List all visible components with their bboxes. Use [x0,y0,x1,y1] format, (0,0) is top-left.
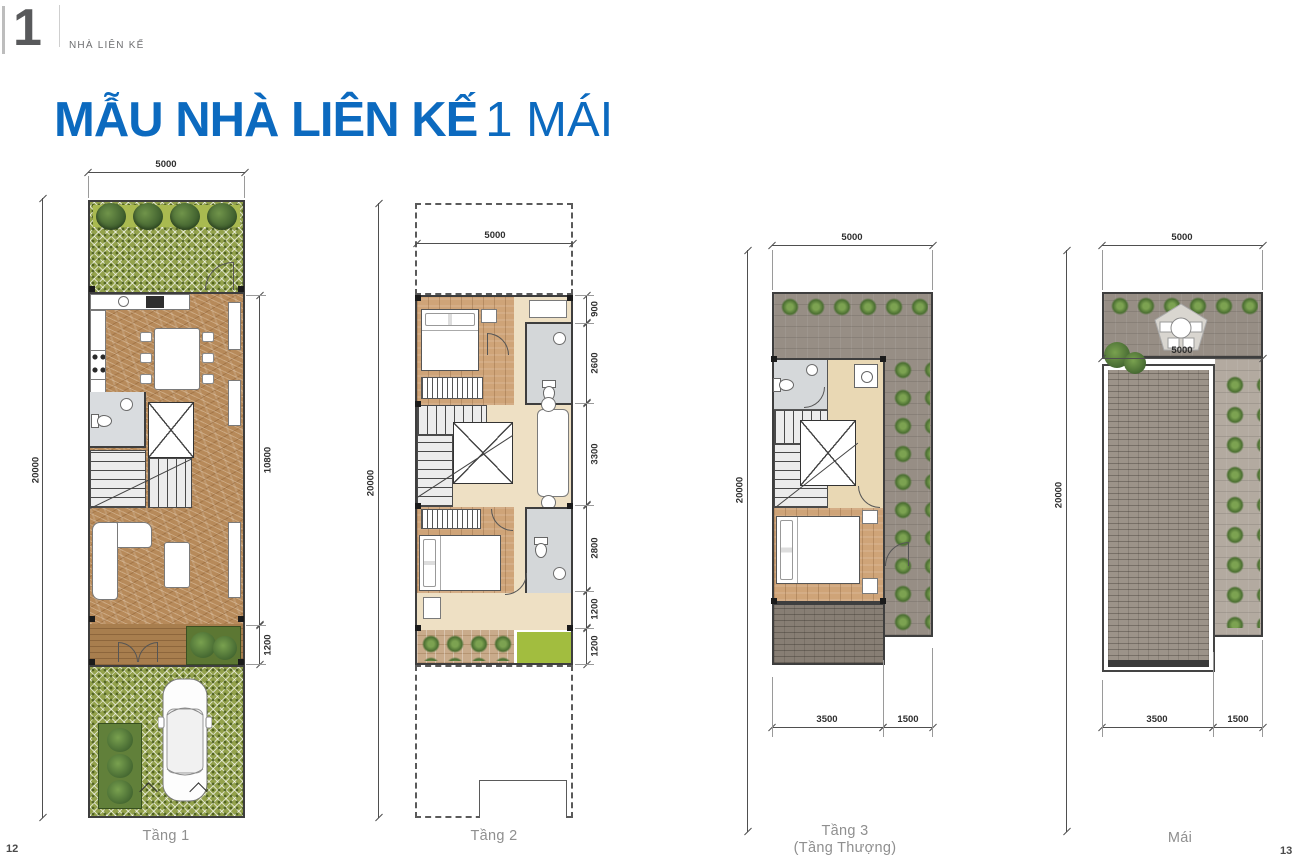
entry-door-arc-left [118,642,138,662]
toilet [91,415,111,429]
balcony-grass [514,630,571,663]
balcony-planter [417,630,514,663]
bedside-table [862,510,878,524]
entry-porch [90,624,243,667]
dim-extension [575,664,594,665]
column [567,503,573,509]
column [567,295,573,301]
column [89,659,95,665]
plan-label-tang-1: Tầng 1 [143,828,190,844]
dim-value: 3500 [816,714,837,725]
column [415,625,421,631]
lower-roof-slope [772,603,885,665]
dim-extension [246,295,266,296]
dim-extension [575,628,594,629]
bed-2 [419,535,501,591]
car-top-view [158,677,212,805]
dim-line [586,591,587,628]
dim-extension [575,295,594,296]
dim-extension [1102,250,1103,290]
bush [107,780,133,804]
column [771,356,777,362]
dim-extension [246,664,266,665]
bathroom-2-door-arc [505,573,527,595]
washbasin [553,567,566,580]
stairs-flight [90,450,146,508]
toilet [773,379,793,393]
bathroom [774,360,828,410]
dining-chair [202,353,214,363]
wall-cabinet [228,380,241,426]
bathroom-1 [525,322,571,405]
dim-extension [1102,680,1103,737]
kitchen-sink [118,296,129,307]
wardrobe [421,377,483,399]
window-planter [529,300,567,318]
wall-cabinet [228,302,241,350]
column [880,598,886,604]
dim-line [1102,358,1263,359]
stair-void [800,420,856,486]
stairs-flight [417,435,453,507]
column [567,625,573,631]
sofa-vertical [92,522,118,600]
dim-value: 20000 [31,457,42,483]
column [238,616,244,622]
dining-chair [202,332,214,342]
brochure-page: 1 NHÀ LIÊN KẾ MẪU NHÀ LIÊN KẾ1 MÁI [0,0,1300,860]
terrace-plant-column [888,356,930,634]
tree [133,203,163,230]
dim-value: 20000 [735,477,746,503]
built-area [415,295,573,665]
dim-line [259,295,260,625]
floor-plan-tang-3 [772,292,933,665]
tv-cabinet [228,522,241,598]
washbasin [553,332,566,345]
wardrobe [421,509,481,529]
column [880,356,886,362]
entry-door-leaf [118,642,119,662]
tree [170,203,200,230]
dim-extension [575,591,594,592]
page-title-light: 1 MÁI [485,93,613,147]
entry-door-leaf [157,642,158,662]
washbasin [120,398,133,411]
column [238,659,244,665]
dim-line [883,727,933,728]
dim-line [772,245,933,246]
entry-planter [186,626,241,665]
dim-value: 5000 [155,159,176,170]
dim-extension [246,625,266,626]
dim-value: 1200 [590,635,601,656]
dim-value: 900 [590,301,601,317]
main-floor [90,294,243,624]
coffee-table [164,542,190,588]
dim-extension [1262,250,1263,290]
bedside-table [862,578,878,594]
sofa [537,409,569,497]
entry-door-arc-right [138,642,158,662]
bed [776,516,860,584]
car-court [90,667,243,816]
column [415,401,421,407]
desk [423,597,441,619]
stair-void [148,402,194,458]
dim-value: 1500 [1227,714,1248,725]
page-number-left: 12 [6,843,18,855]
tree [207,203,237,230]
dim-line [42,198,43,818]
side-walkway [1215,358,1263,637]
dim-extension [883,660,884,737]
dim-line [1102,245,1263,246]
lower-roof-outline [479,780,567,818]
column [89,286,95,292]
dim-value: 5000 [1171,345,1192,356]
walkway-plant-column [1220,370,1260,628]
chapter-number: 1 [13,0,42,58]
dining-chair [140,332,152,342]
gate-mark [139,782,157,800]
bush [107,728,133,752]
bedroom-1-door-leaf [487,333,488,355]
dim-line [1066,250,1067,832]
bush [1124,352,1146,374]
dim-extension [244,176,245,198]
dim-value: 5000 [841,232,862,243]
side-table [541,397,556,412]
roof-tiles [1108,370,1209,662]
washing-machine [854,364,878,388]
roof-eave-edge [1108,660,1209,667]
dim-line [378,203,379,818]
dim-value: 3300 [590,443,601,464]
dining-table [154,328,200,390]
dim-line [586,403,587,505]
dim-line [586,628,587,665]
column [89,616,95,622]
dim-extension [1262,640,1263,737]
garden-bed [98,723,142,809]
floor-plan-tang-1 [88,200,245,818]
dim-value: 20000 [366,470,377,496]
dining-chair [140,374,152,384]
dim-value: 5000 [1171,232,1192,243]
terrace-plant-row [777,296,928,318]
tree [96,203,126,230]
chapter-label: NHÀ LIÊN KẾ [69,40,144,51]
dim-value: 10800 [263,447,274,473]
sloped-roof [1102,364,1215,672]
floor-plan-tang-2 [415,203,573,818]
column [415,503,421,509]
washbasin [806,364,818,376]
dim-line [586,505,587,591]
dim-extension [772,677,773,737]
dining-chair [202,374,214,384]
dim-extension [932,648,933,737]
dim-extension [772,250,773,290]
bathroom-door-arc [804,387,825,408]
bush [190,632,216,658]
dim-value: 1200 [590,598,601,619]
column [415,295,421,301]
gate-door-leaf [233,262,234,290]
dim-value: 1500 [897,714,918,725]
bush [107,754,133,778]
terrace-door-leaf [908,542,909,566]
dim-value: 1200 [263,634,274,655]
bathroom-1 [90,392,146,448]
page-number-right: 13 [1280,845,1292,857]
dim-value: 2800 [590,537,601,558]
dim-line [747,250,748,832]
bathroom-2 [525,507,571,593]
dim-extension [88,176,89,198]
dim-line [772,727,883,728]
plan-label-tang-2: Tầng 2 [471,828,518,844]
plan-label-tang-3: Tầng 3 [822,823,869,839]
stove-block [146,296,164,308]
dim-line [1102,727,1213,728]
dim-value: 2600 [590,352,601,373]
dining-chair [140,353,152,363]
lot-outline-dashed-top [415,203,573,295]
chapter-accent-bar [2,6,5,54]
column [771,598,777,604]
kitchen-counter [90,294,190,310]
page-title: MẪU NHÀ LIÊN KẾ1 MÁI [54,92,613,148]
plan-label-tang-3-sub: (Tầng Thượng) [794,840,897,856]
dim-extension [575,323,594,324]
dim-line [259,625,260,665]
dim-extension [575,403,594,404]
dim-extension [932,250,933,290]
dim-line [417,243,573,244]
dim-line [586,323,587,403]
column [238,286,244,292]
chapter-divider [59,5,60,47]
cooktop-4-burners [90,350,106,380]
dim-value: 5000 [484,230,505,241]
front-garden-paving [90,202,243,294]
toilet [533,537,547,557]
dim-extension [575,505,594,506]
bush [213,636,237,660]
built-area [772,358,885,603]
gate-door-arc [205,262,233,290]
dim-line [88,172,245,173]
dim-value: 3500 [1146,714,1167,725]
stairs-flight [148,458,192,508]
balcony-bushes [419,633,512,661]
dim-line [586,295,587,323]
bedroom-door-arc [858,486,880,508]
page-title-bold: MẪU NHÀ LIÊN KẾ [54,93,477,147]
dim-line [1213,727,1263,728]
bed-1 [421,309,479,371]
dim-extension [1213,652,1214,737]
dim-value: 20000 [1054,482,1065,508]
bedside-table [481,309,497,323]
plan-label-mai: Mái [1168,830,1192,846]
